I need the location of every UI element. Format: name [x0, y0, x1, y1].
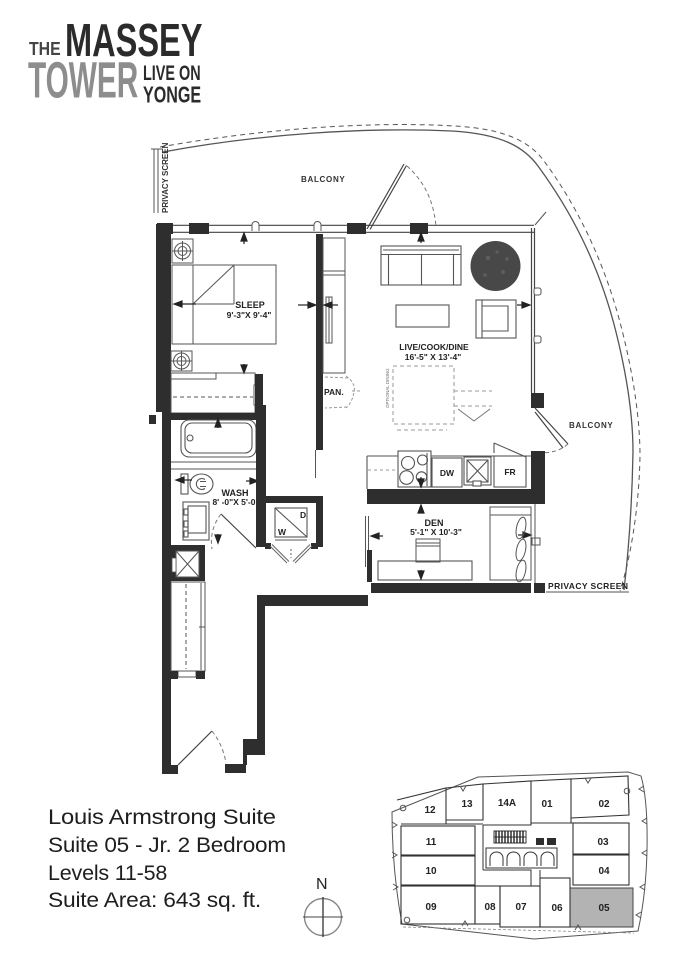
svg-text:14A: 14A: [498, 798, 516, 809]
svg-text:01: 01: [541, 799, 553, 810]
svg-text:04: 04: [598, 866, 610, 877]
svg-text:07: 07: [515, 902, 527, 913]
svg-text:05: 05: [598, 903, 610, 914]
svg-text:08: 08: [484, 902, 496, 913]
svg-text:12: 12: [424, 805, 436, 816]
svg-text:13: 13: [461, 799, 473, 810]
svg-text:02: 02: [598, 799, 610, 810]
svg-text:09: 09: [425, 902, 437, 913]
svg-text:06: 06: [551, 903, 563, 914]
svg-text:03: 03: [597, 837, 609, 848]
svg-text:11: 11: [426, 837, 437, 848]
svg-text:10: 10: [425, 866, 437, 877]
